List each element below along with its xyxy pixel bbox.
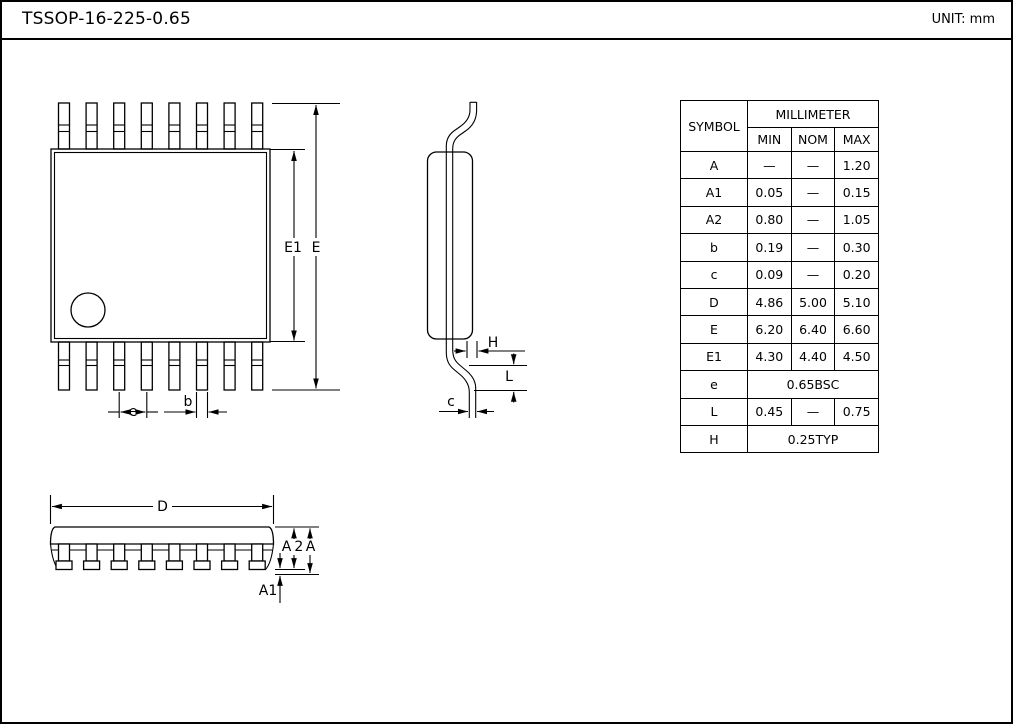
table-cell: 0.80 xyxy=(748,206,792,233)
package-body-inner-outline xyxy=(55,153,267,339)
table-cell: A2 xyxy=(681,206,748,233)
table-cell: 6.20 xyxy=(748,316,792,343)
pin1-indicator-circle xyxy=(71,293,105,327)
table-cell: E xyxy=(681,316,748,343)
table-cell: E1 xyxy=(681,343,748,370)
body-top-face xyxy=(51,527,274,544)
dim-E: E xyxy=(272,104,340,391)
top-pins xyxy=(59,103,263,149)
table-row-b: b 0.19 — 0.30 xyxy=(681,234,879,261)
package-body-outline xyxy=(51,149,270,342)
table-cell: 0.19 xyxy=(748,234,792,261)
dim-D: D xyxy=(51,495,274,524)
top-view: E1 E e xyxy=(51,103,340,420)
table-header-millimeter: MILLIMETER xyxy=(748,101,879,128)
table-cell: 1.20 xyxy=(835,152,879,179)
table-cell: 0.45 xyxy=(748,398,792,425)
table-cell: — xyxy=(791,261,835,288)
table-header-nom: NOM xyxy=(791,128,835,152)
body-right-lower-edge xyxy=(266,544,274,570)
table-cell: 0.20 xyxy=(835,261,879,288)
dim-label-b: b xyxy=(184,394,193,410)
bottom-pins xyxy=(59,342,263,390)
table-cell: 0.65BSC xyxy=(748,371,879,398)
table-cell: A xyxy=(681,152,748,179)
table-cell: H xyxy=(681,425,748,452)
table-cell: — xyxy=(791,234,835,261)
table-cell: — xyxy=(791,398,835,425)
table-cell: 0.25TYP xyxy=(748,425,879,452)
table-cell: 0.75 xyxy=(835,398,879,425)
table-row-A: A — — 1.20 xyxy=(681,152,879,179)
table-row-A1: A1 0.05 — 0.15 xyxy=(681,179,879,206)
table-cell: 0.05 xyxy=(748,179,792,206)
table-cell: b xyxy=(681,234,748,261)
table-cell: — xyxy=(748,152,792,179)
table-cell: 0.30 xyxy=(835,234,879,261)
dim-label-A2: A2 xyxy=(282,539,306,555)
dim-e: e xyxy=(108,392,158,420)
table-cell: — xyxy=(791,206,835,233)
table-cell: 5.10 xyxy=(835,288,879,315)
table-cell: D xyxy=(681,288,748,315)
front-view: D A2 A A1 xyxy=(51,495,320,603)
dim-L: L xyxy=(469,354,527,403)
table-cell: 4.50 xyxy=(835,343,879,370)
front-pins xyxy=(56,544,265,570)
table-cell: e xyxy=(681,371,748,398)
table-cell: 6.60 xyxy=(835,316,879,343)
table-row-H: H 0.25TYP xyxy=(681,425,879,452)
dim-label-D: D xyxy=(157,499,168,515)
table-cell: 0.09 xyxy=(748,261,792,288)
table-row-A2: A2 0.80 — 1.05 xyxy=(681,206,879,233)
table-row-E: E 6.20 6.40 6.60 xyxy=(681,316,879,343)
table-row-L: L 0.45 — 0.75 xyxy=(681,398,879,425)
table-cell: 0.15 xyxy=(835,179,879,206)
table-cell: 4.86 xyxy=(748,288,792,315)
dim-label-H: H xyxy=(488,335,499,351)
table-row-E1: E1 4.30 4.40 4.50 xyxy=(681,343,879,370)
table-cell: 6.40 xyxy=(791,316,835,343)
dim-label-c: c xyxy=(447,394,455,410)
table-cell: c xyxy=(681,261,748,288)
table-cell: 5.00 xyxy=(791,288,835,315)
table-cell: 4.30 xyxy=(748,343,792,370)
table-cell: — xyxy=(791,152,835,179)
dim-label-E1: E1 xyxy=(284,240,302,256)
table-cell: — xyxy=(791,179,835,206)
dim-b: b xyxy=(164,392,227,418)
dim-label-E: E xyxy=(312,240,321,256)
package-outline-drawing-page: TSSOP-16-225-0.65 UNIT: mm xyxy=(0,0,1013,724)
table-row-D: D 4.86 5.00 5.10 xyxy=(681,288,879,315)
table-row-c: c 0.09 — 0.20 xyxy=(681,261,879,288)
table-header-max: MAX xyxy=(835,128,879,152)
dimension-table: SYMBOL MILLIMETER MIN NOM MAX A — — 1.20… xyxy=(680,100,879,453)
table-cell: 1.05 xyxy=(835,206,879,233)
table-cell: L xyxy=(681,398,748,425)
body-side-outline xyxy=(428,152,473,339)
dim-label-A1: A1 xyxy=(259,583,277,599)
dim-label-e: e xyxy=(129,404,138,420)
dim-label-L: L xyxy=(505,369,513,385)
dim-E1: E1 xyxy=(270,150,305,342)
table-cell: A1 xyxy=(681,179,748,206)
dim-label-A: A xyxy=(306,539,316,555)
side-view: H L c xyxy=(428,102,528,418)
table-header-min: MIN xyxy=(748,128,792,152)
table-header-symbol: SYMBOL xyxy=(681,101,748,152)
dim-c: c xyxy=(439,394,494,412)
table-cell: 4.40 xyxy=(791,343,835,370)
table-row-e: e 0.65BSC xyxy=(681,371,879,398)
